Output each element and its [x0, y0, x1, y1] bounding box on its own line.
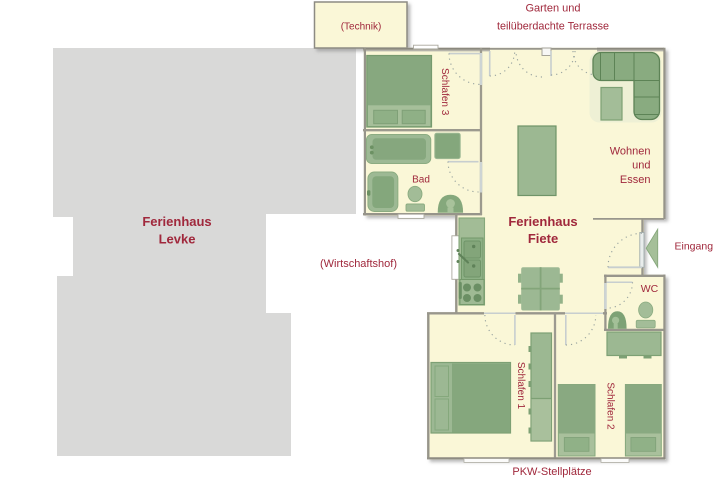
svg-text:Schlafen 2: Schlafen 2	[604, 382, 615, 430]
svg-text:Fiete: Fiete	[528, 231, 558, 246]
svg-text:Bad: Bad	[412, 175, 430, 186]
svg-text:Ferienhaus: Ferienhaus	[508, 214, 577, 229]
svg-text:(Technik): (Technik)	[341, 21, 382, 32]
svg-text:WC: WC	[641, 283, 659, 295]
svg-text:Schlafen 1: Schlafen 1	[515, 362, 526, 410]
svg-text:und: und	[632, 159, 650, 171]
svg-text:Eingang: Eingang	[675, 241, 714, 253]
svg-text:Levke: Levke	[159, 231, 196, 246]
svg-text:Essen: Essen	[620, 174, 651, 186]
svg-text:Wohnen: Wohnen	[610, 145, 651, 157]
svg-text:(Wirtschaftshof): (Wirtschaftshof)	[320, 258, 397, 270]
svg-text:Ferienhaus: Ferienhaus	[142, 214, 211, 229]
svg-text:Garten und: Garten und	[525, 3, 580, 15]
svg-text:teilüberdachte Terrasse: teilüberdachte Terrasse	[497, 21, 609, 33]
svg-text:PKW-Stellplätze: PKW-Stellplätze	[512, 466, 591, 478]
svg-text:Schlafen 3: Schlafen 3	[439, 68, 450, 116]
